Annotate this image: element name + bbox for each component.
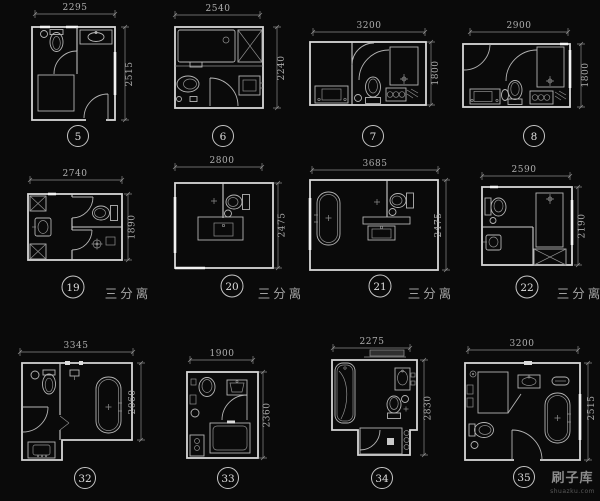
svg-text:7: 7: [370, 131, 377, 143]
svg-text:33: 33: [221, 473, 234, 485]
plan-cell-7: 3200: [300, 0, 450, 150]
svg-text:2360: 2360: [263, 403, 273, 428]
towel-bar-icon: [552, 377, 569, 385]
svg-text:1800: 1800: [581, 63, 591, 88]
floor-plan-22-drawing: 2590 2190: [450, 150, 600, 330]
floor-plan-21-drawing: 3685 2475 21: [300, 150, 450, 330]
room-outline: [463, 44, 570, 107]
svg-text:19: 19: [66, 282, 79, 294]
shower-head-icon: [92, 239, 103, 250]
plan-number-badge: 5: [68, 126, 89, 147]
bathtub-icon: [210, 423, 250, 453]
plan-number-badge: 32: [75, 468, 96, 489]
plan-cell-19: 2740 189: [0, 150, 150, 330]
entry-door-icon: [464, 44, 490, 70]
plan-cell-33: 1900 2360: [150, 330, 300, 501]
bathtub-icon: [545, 393, 571, 443]
dimension-top: 2590: [480, 165, 572, 180]
bathtub-inner: [213, 426, 247, 450]
toilet-door-icon: [72, 197, 93, 218]
svg-text:1890: 1890: [128, 215, 138, 240]
dimension-right: 2515: [584, 361, 597, 462]
dimension-right: 2060: [128, 361, 145, 442]
dimension-right: 2475: [274, 181, 288, 270]
plan-number-badge: 35: [514, 467, 535, 488]
watermark-domain: shuazku.com: [550, 488, 595, 496]
pivot-door-icon: [60, 416, 69, 430]
plan-number-badge: 20: [221, 275, 243, 297]
shower-head-icon: [546, 194, 554, 204]
dimension-top: 2740: [28, 169, 124, 184]
bathtub-icon: [335, 363, 355, 423]
dimension-top: 2295: [33, 3, 117, 18]
room-outline: [310, 180, 438, 270]
dimension-top: 2540: [173, 4, 262, 19]
vanity-icon: [315, 86, 348, 103]
plan-cell-20: 2800 2475 20 三分离: [150, 150, 300, 330]
floor-plan-34-drawing: 2275: [300, 330, 450, 501]
sink-icon: [28, 442, 55, 458]
partition-wall: [72, 194, 122, 260]
drain-icon: [223, 37, 229, 43]
dimension-top: 3200: [466, 339, 580, 354]
vanity-icon: [363, 217, 410, 240]
floor-plan-32-drawing: 3345 206: [0, 330, 150, 501]
toilet-icon: [31, 370, 56, 394]
dimension-top: 2800: [173, 156, 264, 171]
wall-openings: [490, 187, 572, 245]
watermark: 刷子库 shuazku.com: [550, 471, 595, 495]
separator-label: 三分离: [408, 286, 450, 301]
plan-cell-22: 2590 2190: [450, 150, 600, 330]
dimension-right: 1890: [124, 192, 138, 262]
door-icon: [210, 78, 238, 106]
svg-text:1900: 1900: [210, 349, 235, 359]
svg-text:2800: 2800: [210, 156, 235, 166]
floor-plan-8-drawing: 2900: [450, 0, 600, 150]
sink-icon: [483, 235, 501, 250]
svg-text:3200: 3200: [357, 21, 382, 31]
dimension-right: 2830: [420, 358, 434, 457]
bathtub-icon: [96, 377, 122, 433]
interior-door-icon: [54, 51, 77, 74]
shower-icon: [360, 428, 402, 454]
toilet-icon: [508, 81, 522, 105]
shower-door-icon: [506, 50, 537, 81]
faucet-icon: [70, 370, 79, 380]
bathtub-icon: [314, 192, 340, 245]
svg-text:1800: 1800: [431, 61, 441, 86]
wall-fixture: [190, 395, 196, 404]
plan-cell-8: 2900: [450, 0, 600, 150]
dimension-top: 2900: [468, 21, 570, 36]
separator-label: 三分离: [258, 286, 300, 301]
svg-text:20: 20: [225, 281, 238, 293]
floor-plan-5-drawing: 2295 2515 5: [0, 0, 150, 150]
plan-cell-32: 3345 206: [0, 330, 150, 501]
door-icon: [23, 407, 48, 432]
door-icon: [222, 395, 247, 420]
interior-door-icon: [352, 43, 374, 65]
sink-icon: [239, 76, 263, 95]
dimension-top: 3345: [18, 341, 135, 356]
toilet-icon: [387, 396, 409, 419]
partition-wall: [482, 227, 533, 265]
plan-number-badge: 21: [369, 275, 391, 297]
sink-icon: [32, 218, 51, 236]
dimension-right: 2515: [121, 25, 135, 122]
toilet-icon: [41, 30, 64, 52]
svg-text:2515: 2515: [587, 396, 597, 421]
toilet-icon: [389, 193, 414, 216]
svg-text:22: 22: [520, 282, 533, 294]
faucet-icon: [211, 198, 217, 204]
drain-box-icon: [106, 237, 115, 245]
svg-text:21: 21: [373, 281, 386, 293]
toilet-icon: [177, 76, 200, 102]
shower-door-icon: [72, 230, 92, 250]
wall-opening: [524, 361, 532, 365]
floor-plan-20-drawing: 2800 2475 20 三分离: [150, 150, 300, 330]
shaft-icon: [534, 249, 566, 265]
vanity-icon: [198, 217, 243, 240]
plan-cell-6: 2540 2240: [150, 0, 300, 150]
washer-counter-icon: [386, 88, 406, 101]
wall-opening: [65, 361, 70, 365]
svg-text:2830: 2830: [424, 396, 434, 421]
floor-drain-icon: [355, 95, 362, 102]
svg-text:2590: 2590: [512, 165, 537, 175]
svg-text:2190: 2190: [578, 214, 588, 239]
wall-fixture: [467, 385, 473, 394]
plan-number-badge: 6: [213, 126, 234, 147]
washer-icon: [190, 435, 204, 456]
towel-rail-icon: [404, 431, 409, 450]
shower-door-icon: [508, 394, 521, 413]
svg-text:3200: 3200: [510, 339, 535, 349]
svg-text:3345: 3345: [64, 341, 89, 351]
bathtub-icon: [178, 30, 235, 62]
wall-openings: [175, 197, 205, 268]
dimension-top: 3685: [310, 159, 440, 174]
separator-label: 三分离: [105, 286, 150, 301]
sink-icon: [227, 380, 247, 395]
svg-text:2740: 2740: [63, 169, 88, 179]
dimension-top: 3200: [311, 21, 427, 36]
floor-plan-33-drawing: 1900 2360: [150, 330, 300, 501]
shower-icon: [478, 372, 508, 413]
floor-plan-19-drawing: 2740 189: [0, 150, 150, 330]
svg-text:2275: 2275: [360, 337, 385, 347]
shower-head-icon: [546, 76, 554, 86]
room-outline: [175, 183, 273, 268]
wall-fixture: [467, 398, 473, 407]
svg-text:32: 32: [78, 473, 91, 485]
shower-door-icon: [359, 50, 389, 80]
wall-openings: [560, 44, 570, 88]
shower-door-icon: [360, 430, 380, 450]
toilet-icon: [469, 423, 494, 449]
pedestal-icon: [502, 90, 509, 101]
toilet-icon: [485, 198, 506, 224]
svg-text:2540: 2540: [206, 4, 231, 14]
dimension-right: 2475: [434, 178, 450, 272]
entry-door-icon: [512, 430, 542, 460]
separator-label: 三分离: [557, 286, 600, 301]
room-outline: [465, 363, 580, 460]
dimension-right: 2360: [259, 370, 273, 460]
faucet-icon: [374, 199, 380, 205]
shelf-icon: [364, 350, 406, 357]
washer-counter-icon: [530, 91, 553, 104]
plan-number-badge: 8: [524, 126, 545, 147]
width-dimension-label: 2295: [63, 3, 88, 13]
floor-plan-sheet: 2295 2515 5: [0, 0, 600, 501]
svg-text:2475: 2475: [434, 213, 444, 238]
toilet-icon: [93, 206, 118, 221]
shower-head-icon: [470, 371, 476, 377]
entry-door-icon: [84, 94, 108, 120]
svg-text:2475: 2475: [278, 213, 288, 238]
floor-plan-6-drawing: 2540 2240: [150, 0, 300, 150]
svg-text:5: 5: [75, 131, 82, 143]
plan-number-badge: 19: [62, 276, 84, 298]
toilet-icon: [225, 195, 250, 218]
plan-number-badge: 22: [516, 276, 538, 298]
sink-icon: [395, 368, 415, 390]
svg-text:8: 8: [531, 131, 538, 143]
plan-number-badge: 33: [218, 468, 239, 489]
svg-text:2240: 2240: [277, 56, 287, 81]
wall-opening: [79, 361, 83, 365]
wall-opening: [227, 421, 235, 424]
dimension-right: 2190: [574, 185, 588, 267]
room-outline: [32, 27, 115, 120]
vanity-icon: [470, 89, 500, 104]
drain-box-icon: [387, 438, 394, 445]
dimension-right: 1800: [427, 40, 441, 107]
svg-text:3685: 3685: [363, 159, 388, 169]
toilet-icon: [199, 378, 215, 397]
shower-head-icon: [400, 74, 408, 84]
plan-cell-21: 3685 2475 21: [300, 150, 450, 330]
plan-cell-34: 2275: [300, 330, 450, 501]
plan-cell-5: 2295 2515 5: [0, 0, 150, 150]
svg-text:35: 35: [517, 472, 530, 484]
hatch-detail: [555, 91, 566, 100]
sink-icon: [518, 375, 540, 388]
shower-icon: [38, 75, 74, 111]
dimension-right: 1800: [577, 42, 591, 109]
floor-drain-icon: [191, 409, 199, 417]
shaft-icon: [238, 30, 262, 62]
dimension-top: 1900: [188, 349, 255, 364]
svg-text:6: 6: [220, 131, 227, 143]
watermark-logo: 刷子库: [550, 471, 595, 487]
floor-plan-7-drawing: 3200: [300, 0, 450, 150]
hatch-detail: [407, 89, 418, 98]
room-outline: [175, 27, 263, 108]
plan-number-badge: 7: [363, 126, 384, 147]
room-outline: [310, 42, 426, 105]
height-dimension-label: 2515: [125, 62, 135, 87]
toilet-icon: [366, 77, 381, 104]
wall-fixture: [191, 379, 196, 385]
sink-icon: [80, 30, 112, 44]
svg-text:2060: 2060: [128, 390, 138, 415]
dimension-right: 2240: [273, 25, 287, 110]
svg-text:2900: 2900: [507, 21, 532, 31]
plan-number-badge: 34: [372, 468, 393, 489]
svg-text:34: 34: [375, 473, 389, 485]
